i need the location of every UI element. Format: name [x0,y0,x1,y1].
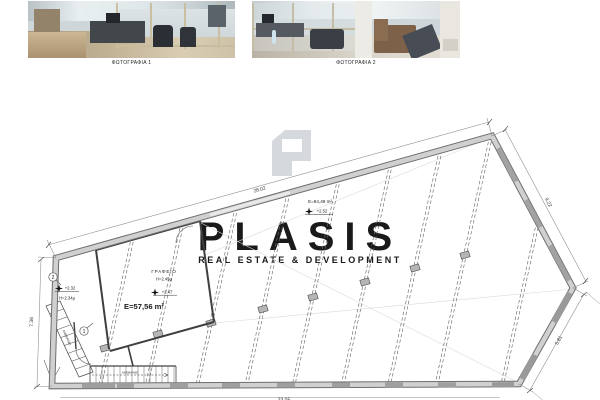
marker-1-number: 1 [83,329,86,335]
floor-plan-svg: PLASIS REAL ESTATE & DEVELOPMENT [0,0,600,400]
dim-right: 9.22 [543,197,553,209]
landing-height: Η=2.34μ [59,296,76,301]
office-area: E=57,56 m² [124,302,164,311]
stairs-main [90,366,176,385]
dim-left: 7.36 [29,317,35,327]
stairs-main-label: ΑΝΕΒΑΙΝΕΙ [122,371,139,375]
office-room [74,221,214,366]
office-level: +2.47 [162,290,173,295]
watermark: PLASIS REAL ESTATE & DEVELOPMENT [198,130,402,265]
door-arc-office [176,226,193,243]
office-height: Η=2.45μ [156,277,173,282]
dim-top: 28.02 [253,185,267,194]
watermark-logo [272,130,311,176]
marker-1: 1 [80,323,93,335]
landing-level: +2.32 [65,286,76,291]
drawing-sheet: ΦΩΤΟΓΡΑΦΙΑ 1 ΦΩΤΟΓΡΑΦΙΑ 2 PLASIS REAL ES… [0,0,600,400]
marker-2-number: 2 [52,275,55,281]
office-name: ΓΡΑΦΕΙΟ [151,269,176,274]
hall-area: E=94,49 m² [308,199,332,204]
hall-level: +2.52 [317,209,328,214]
dim-diagonal: 5.81 [554,335,564,347]
